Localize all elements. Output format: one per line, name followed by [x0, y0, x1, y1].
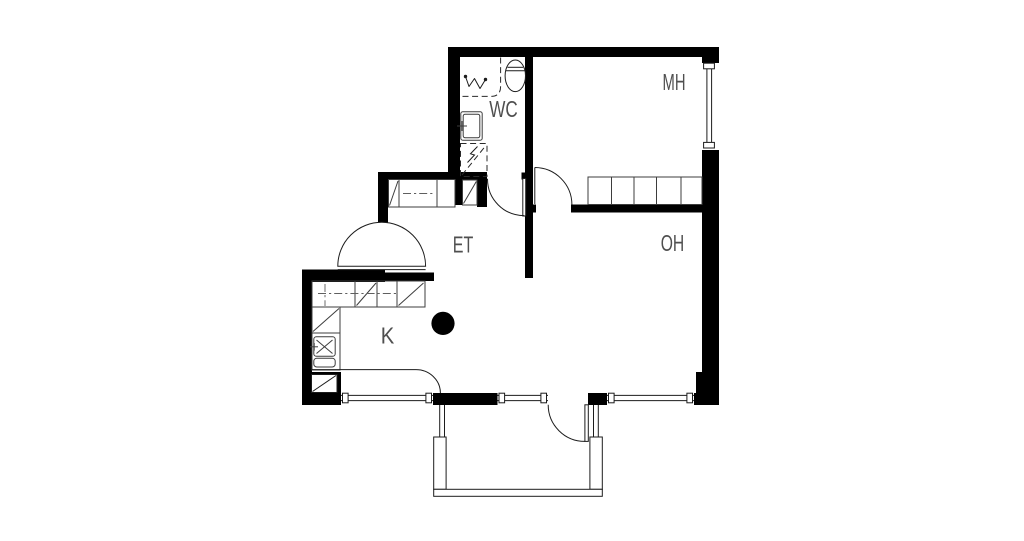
wall-mh-bottom-stub	[533, 205, 536, 213]
mh-wardrobe	[588, 177, 702, 205]
window-bottom-livingroom	[607, 393, 694, 403]
window-cap	[343, 393, 349, 403]
window-cap	[704, 63, 715, 69]
balcony-slab	[434, 489, 603, 496]
structural-column	[431, 312, 454, 335]
mh-door-arc	[535, 168, 572, 205]
balcony-door-arc	[548, 405, 585, 442]
window-bottom-middle	[498, 393, 549, 403]
wc-sink-symbol	[457, 112, 482, 140]
window-right-bedroom	[704, 63, 715, 148]
wall-pier-entry	[378, 172, 388, 223]
balcony	[434, 405, 603, 496]
wall-top	[448, 47, 718, 57]
shower-symbol	[466, 77, 486, 89]
et-closet	[389, 180, 456, 208]
window-bottom-kitchen	[341, 393, 433, 403]
wall-kitchen-top-thin	[385, 273, 434, 282]
drain-zigzag	[468, 147, 478, 163]
wall-wc-left	[448, 47, 460, 173]
wall-et-mh	[525, 57, 533, 278]
window-cap	[704, 142, 715, 148]
wall-kitchen-top-thick	[302, 270, 385, 283]
room-label-et: ET	[453, 232, 474, 258]
balcony-door	[548, 405, 588, 442]
shower-reservation	[461, 144, 488, 177]
wall-bottom-d	[694, 393, 719, 405]
entry-door-arc	[338, 222, 426, 266]
wc-door-arc	[487, 179, 524, 216]
mh-door	[535, 168, 572, 205]
toilet-symbol	[505, 60, 525, 92]
window-cap	[609, 393, 615, 403]
cabinet-diagonal	[357, 283, 377, 306]
balcony-post-right	[590, 437, 602, 489]
room-label-oh: OH	[661, 230, 685, 256]
interior-walls	[378, 47, 702, 278]
entry-door-swing	[338, 222, 426, 269]
wc-shower-area	[461, 58, 501, 97]
wc-door	[487, 179, 525, 217]
balcony-door-leaf	[585, 405, 588, 442]
wall-bottom-b	[433, 393, 498, 405]
room-label-k: K	[381, 323, 395, 349]
room-label-wc: WC	[489, 96, 518, 122]
window-cap	[687, 393, 693, 403]
wall-right-upper	[702, 47, 719, 63]
wall-bottom-pier	[588, 393, 607, 405]
kitchen-counter-left	[310, 307, 340, 370]
shaft-hatch-symbol	[312, 375, 338, 393]
wall-right-lower	[702, 150, 719, 393]
wall-et-top	[388, 172, 487, 180]
wall-mh-bottom	[571, 205, 702, 213]
floor-plan-drawing: WC MH ET OH K	[0, 0, 1024, 541]
wall-pier-c	[477, 173, 487, 207]
duct-hatch	[463, 180, 478, 205]
wall-pier-b	[455, 173, 462, 205]
balcony-post-left	[434, 437, 446, 489]
kitchen-cabinets-upper	[312, 281, 425, 307]
room-label-mh: MH	[663, 69, 686, 95]
floor-plan-page: WC MH ET OH K	[0, 0, 1024, 541]
closet-diagonal	[390, 181, 399, 206]
cabinet-diagonal	[313, 309, 339, 332]
wc-door-leaf	[523, 179, 526, 217]
window-cap	[541, 393, 547, 403]
window-cap	[499, 393, 505, 403]
cabinet-diagonal	[399, 283, 424, 306]
window-cap	[426, 393, 432, 403]
